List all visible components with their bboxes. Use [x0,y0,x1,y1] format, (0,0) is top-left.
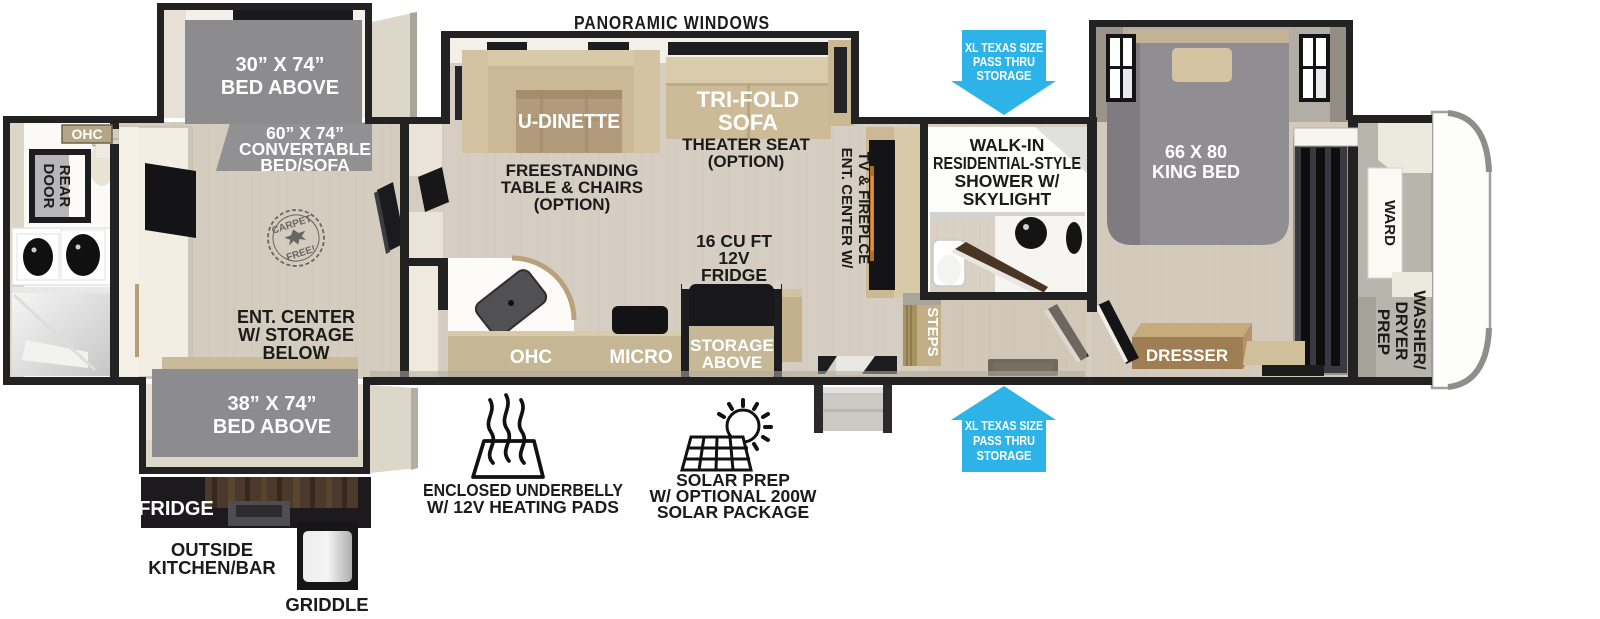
svg-text:DRESSER: DRESSER [1146,346,1228,365]
svg-text:38” X 74”: 38” X 74” [228,393,317,415]
svg-text:RESIDENTIAL-STYLE: RESIDENTIAL-STYLE [933,153,1081,173]
svg-text:XL TEXAS SIZE: XL TEXAS SIZE [965,418,1043,433]
svg-text:WASHER/: WASHER/ [1410,290,1429,370]
svg-text:SOLAR PACKAGE: SOLAR PACKAGE [657,502,809,522]
svg-text:(OPTION): (OPTION) [708,152,785,171]
svg-text:30” X 74”: 30” X 74” [236,54,325,76]
svg-text:W/ 12V HEATING PADS: W/ 12V HEATING PADS [427,497,619,517]
svg-text:WARD: WARD [1381,200,1398,246]
svg-text:STORAGE: STORAGE [977,68,1032,83]
svg-text:MICRO: MICRO [609,347,672,368]
svg-text:DOOR: DOOR [40,164,57,209]
svg-text:FRIDGE: FRIDGE [138,498,214,520]
svg-text:SKYLIGHT: SKYLIGHT [963,189,1052,209]
svg-text:U-DINETTE: U-DINETTE [518,111,620,133]
svg-text:PANORAMIC WINDOWS: PANORAMIC WINDOWS [574,13,770,33]
svg-text:KING BED: KING BED [1152,162,1240,182]
svg-text:KITCHEN/BAR: KITCHEN/BAR [148,557,275,578]
svg-text:PASS THRU: PASS THRU [973,54,1035,69]
svg-text:PASS THRU: PASS THRU [973,433,1035,448]
svg-text:STORAGE: STORAGE [977,448,1032,463]
svg-text:66 X 80: 66 X 80 [1165,142,1227,162]
svg-text:OHC: OHC [510,347,553,368]
svg-text:GRIDDLE: GRIDDLE [285,594,368,615]
svg-text:ABOVE: ABOVE [702,353,762,372]
svg-text:SHOWER W/: SHOWER W/ [955,171,1060,191]
svg-text:REAR: REAR [56,165,73,208]
svg-text:BED/SOFA: BED/SOFA [260,155,350,175]
svg-text:SOFA: SOFA [718,110,778,135]
svg-text:ENT. CENTER: ENT. CENTER [237,307,355,327]
svg-text:W/ STORAGE: W/ STORAGE [238,325,354,345]
svg-text:WALK-IN: WALK-IN [970,135,1045,155]
svg-text:PREP: PREP [1374,309,1393,355]
svg-text:ENT. CENTER W/: ENT. CENTER W/ [838,148,855,270]
svg-text:XL TEXAS SIZE: XL TEXAS SIZE [965,40,1043,55]
svg-text:(OPTION): (OPTION) [534,195,611,214]
svg-text:OHC: OHC [71,126,102,142]
svg-text:STEPS: STEPS [924,307,941,356]
svg-text:BED ABOVE: BED ABOVE [213,416,331,438]
svg-text:BELOW: BELOW [263,343,330,363]
svg-text:BED ABOVE: BED ABOVE [221,77,339,99]
svg-text:TRI-FOLD: TRI-FOLD [697,87,800,112]
svg-text:FRIDGE: FRIDGE [701,265,767,285]
svg-text:TV & FIREPLCE: TV & FIREPLCE [855,152,872,265]
svg-text:DRYER: DRYER [1392,302,1411,361]
